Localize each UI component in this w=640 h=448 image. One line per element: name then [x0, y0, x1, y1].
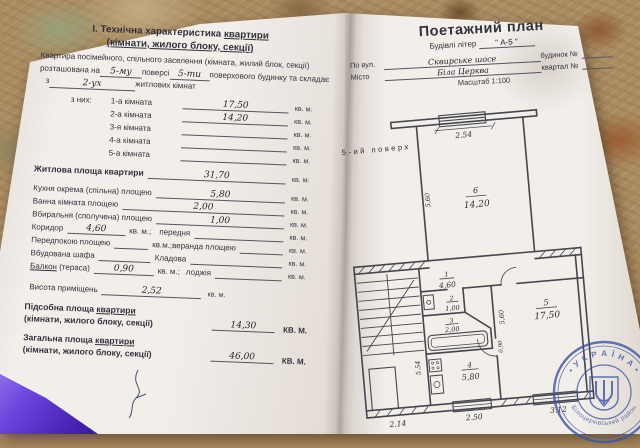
floor-label: 5-ий поверх	[341, 142, 411, 157]
room1-number: 1	[444, 270, 449, 278]
building-letter-value: " А-5 "	[478, 36, 534, 49]
balkon-area-value: 0,90	[94, 263, 154, 275]
rooms-count-value: 2-ух	[49, 77, 135, 90]
stamp-district-text: Білоцерківський район	[570, 404, 639, 427]
height-value: 2,52	[102, 285, 202, 299]
room3-number: 3	[449, 317, 454, 324]
living-area-value: 31,70	[148, 168, 286, 184]
pen-mark	[118, 366, 162, 422]
dim-door: 0,90	[498, 340, 505, 353]
rooms-list: з них: 1-а кімната 17,50 кв. м. 2-а кімн…	[23, 90, 331, 167]
dim-top: 2.54	[454, 130, 473, 141]
floor-number-value: 5-му	[100, 67, 142, 79]
trident-icon	[590, 377, 618, 410]
dim-left-side: 5.54	[414, 360, 423, 375]
room-5-area	[180, 160, 286, 165]
plan-labels: 6 14,20 2.54 5,60 1 4,60 2 1,00 3 2,00 4…	[364, 123, 569, 429]
official-stamp: • У К Р А Ї Н А • Білоцерківський район	[548, 336, 640, 448]
technical-characteristics-section: І. Технічна характеристика квартири (кім…	[15, 20, 334, 367]
room3-area: 2,00	[444, 325, 460, 334]
room2-number: 2	[448, 295, 454, 302]
dim-room5-side: 5,60	[497, 310, 506, 325]
zagalna-value: 46,00	[210, 351, 274, 364]
stove	[429, 359, 442, 372]
bathtub	[428, 331, 489, 351]
room4-number: 4	[466, 360, 472, 369]
room5-area: 17,50	[534, 310, 561, 322]
photo-of-document: { "left_page": { "title_line1_pre": "І. …	[0, 0, 640, 434]
dim-room6-side: 5,60	[423, 193, 432, 208]
kitchen-sink	[430, 375, 444, 394]
floor-plan-header: Поетажний план Будівлі літер " А-5 " По …	[348, 14, 617, 93]
door-arc	[500, 267, 517, 284]
stamp-country-text: • У К Р А Ї Н А •	[566, 349, 640, 374]
room4-area: 5,80	[461, 372, 480, 383]
dim-stair-bottom: 2.14	[388, 419, 407, 430]
room1-area: 4,60	[438, 280, 457, 291]
room5-number: 5	[543, 298, 549, 307]
room2-area: 1,00	[445, 304, 460, 313]
podsobna-block: Підсобна площа квартири (кімнати, жилого…	[16, 299, 323, 335]
svg-text:Білоцерківський район: Білоцерківський район	[570, 404, 639, 427]
room6-number: 6	[473, 186, 479, 195]
podsobna-value: 14,30	[211, 320, 275, 333]
svg-text:• У К Р А Ї Н А •: • У К Р А Ї Н А •	[566, 349, 640, 374]
dim-kitchen-bottom: 2.50	[464, 412, 483, 423]
room6-area: 14,20	[464, 199, 491, 211]
